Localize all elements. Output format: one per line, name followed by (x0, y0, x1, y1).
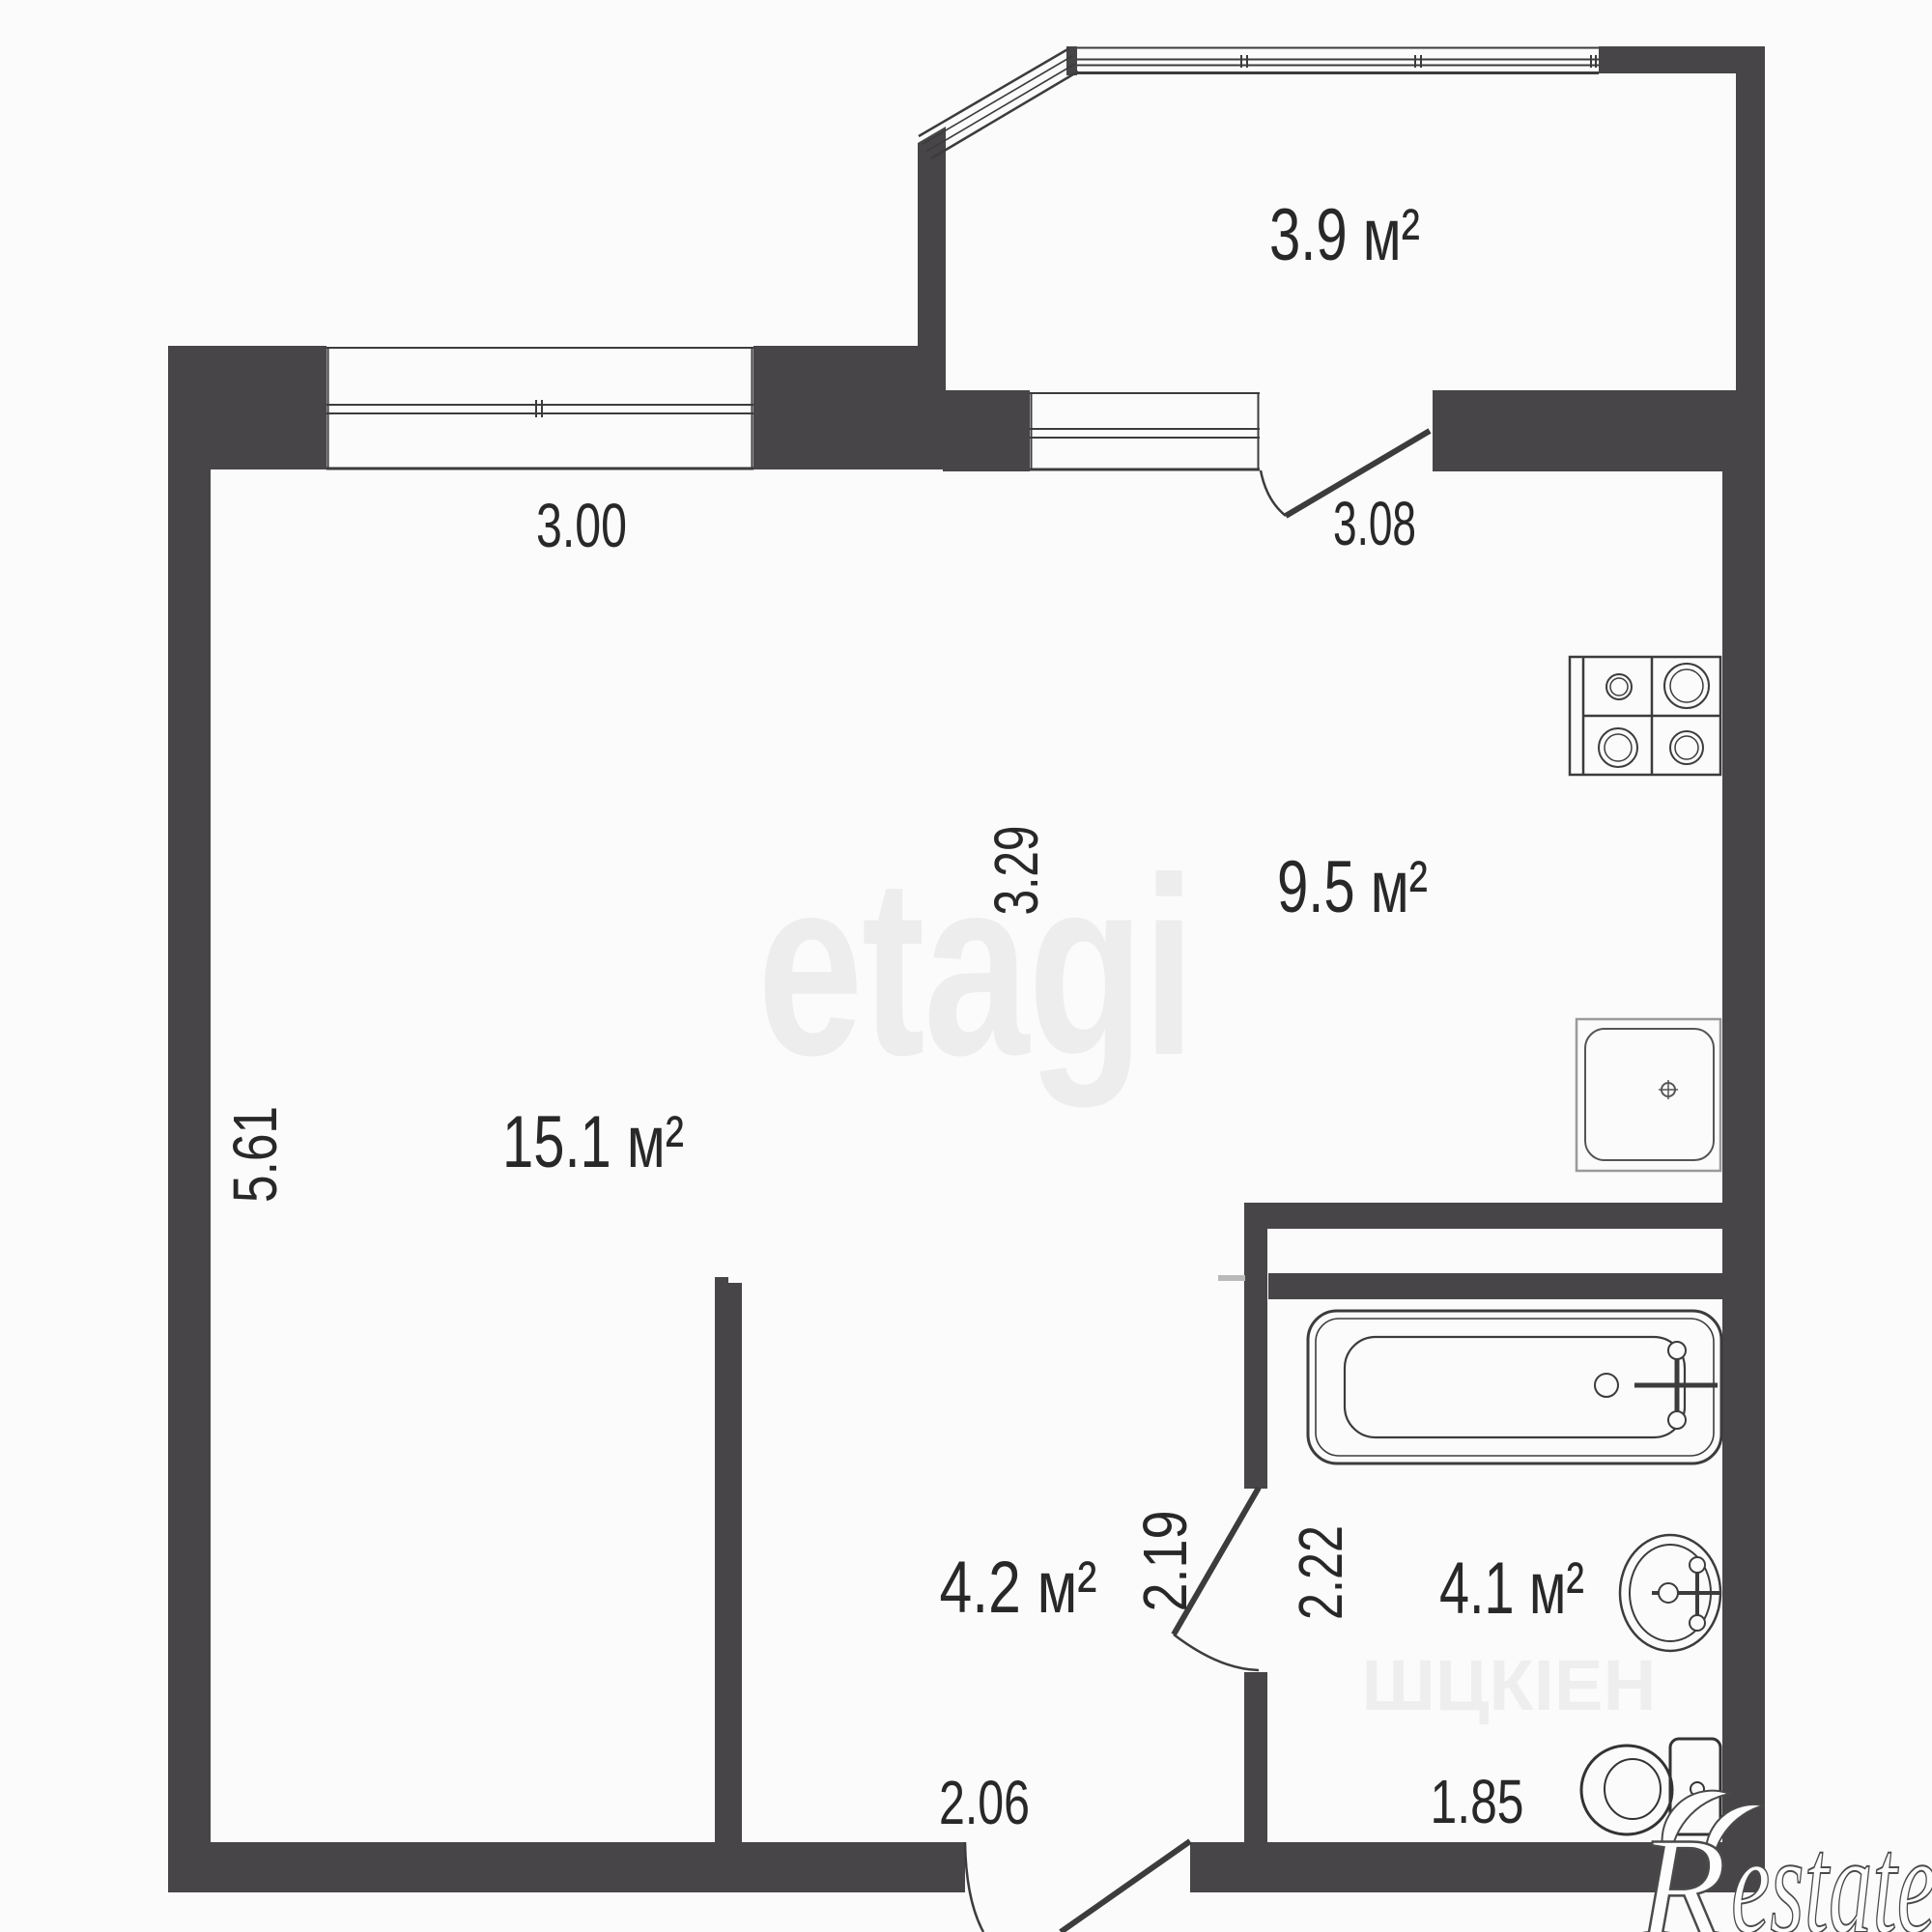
svg-text:2.22: 2.22 (1286, 1525, 1355, 1620)
svg-text:estate: estate (1731, 1806, 1932, 1932)
svg-text:3.00: 3.00 (536, 491, 627, 560)
svg-text:ШЦКІЕН: ШЦКІЕН (1362, 1645, 1657, 1725)
svg-text:3.9 м²: 3.9 м² (1269, 194, 1420, 276)
svg-text:3.08: 3.08 (1333, 489, 1416, 558)
svg-text:9.5 м²: 9.5 м² (1277, 846, 1428, 928)
svg-text:3.29: 3.29 (981, 826, 1051, 916)
svg-text:15.1 м²: 15.1 м² (502, 1101, 684, 1183)
svg-text:2.19: 2.19 (1130, 1511, 1200, 1612)
svg-text:5.61: 5.61 (220, 1106, 290, 1203)
svg-text:2.06: 2.06 (939, 1768, 1030, 1837)
svg-text:4.2 м²: 4.2 м² (940, 1547, 1097, 1629)
svg-text:etagi: etagi (757, 825, 1194, 1109)
svg-text:4.1 м²: 4.1 м² (1439, 1548, 1584, 1630)
svg-text:1.85: 1.85 (1431, 1767, 1524, 1836)
svg-text:R: R (1636, 1807, 1727, 1932)
